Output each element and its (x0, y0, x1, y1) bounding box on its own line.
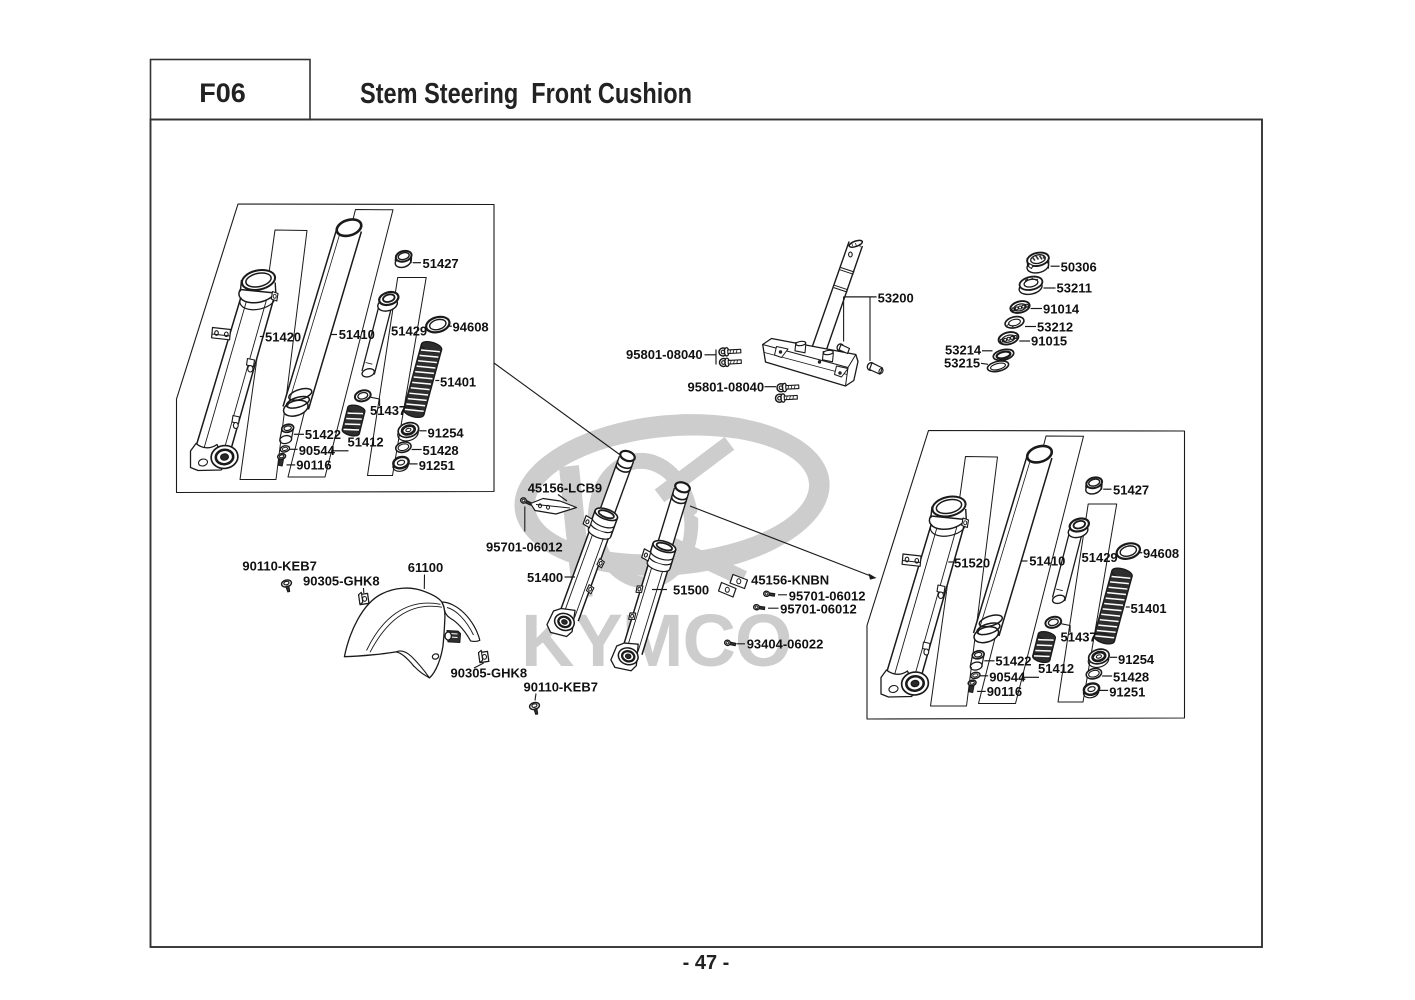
svg-text:51401: 51401 (440, 375, 476, 390)
svg-text:90116: 90116 (296, 458, 331, 473)
svg-text:95701-06012: 95701-06012 (486, 540, 563, 555)
svg-text:53215: 53215 (944, 356, 980, 371)
svg-text:51429: 51429 (391, 324, 427, 339)
svg-text:90110-KEB7: 90110-KEB7 (242, 559, 316, 574)
svg-text:51520: 51520 (954, 556, 990, 571)
svg-text:51422: 51422 (305, 427, 341, 442)
svg-text:51428: 51428 (423, 443, 459, 458)
svg-text:95801-08040: 95801-08040 (688, 380, 765, 395)
svg-text:91251: 91251 (419, 458, 455, 473)
svg-text:91254: 91254 (428, 426, 465, 441)
svg-text:Stem Steering Front Cushion: Stem Steering Front Cushion (360, 78, 692, 110)
svg-text:53212: 53212 (1037, 320, 1073, 335)
svg-text:51427: 51427 (423, 256, 459, 271)
svg-text:91015: 91015 (1031, 334, 1067, 349)
svg-text:61100: 61100 (408, 560, 443, 575)
svg-text:95801-08040: 95801-08040 (626, 347, 703, 362)
svg-text:50306: 50306 (1061, 260, 1097, 275)
svg-text:51500: 51500 (673, 583, 709, 598)
svg-text:53211: 53211 (1057, 281, 1092, 296)
svg-text:51400: 51400 (527, 570, 563, 585)
svg-text:53200: 53200 (878, 291, 914, 306)
svg-text:51437: 51437 (370, 403, 406, 418)
svg-text:94608: 94608 (453, 320, 489, 335)
svg-text:51410: 51410 (339, 327, 375, 342)
svg-text:- 47 -: - 47 - (683, 952, 730, 974)
svg-text:90305-GHK8: 90305-GHK8 (451, 666, 528, 681)
svg-text:45156-KNBN: 45156-KNBN (751, 573, 829, 588)
svg-text:95701-06012: 95701-06012 (780, 602, 857, 617)
svg-text:90110-KEB7: 90110-KEB7 (524, 680, 598, 695)
svg-text:90305-GHK8: 90305-GHK8 (303, 574, 380, 589)
svg-text:45156-LCB9: 45156-LCB9 (528, 481, 602, 496)
svg-text:51420: 51420 (265, 330, 301, 345)
svg-text:90544: 90544 (299, 443, 336, 458)
svg-text:51412: 51412 (348, 435, 384, 450)
svg-text:F06: F06 (199, 78, 246, 108)
svg-text:93404-06022: 93404-06022 (747, 637, 824, 652)
svg-text:91014: 91014 (1043, 302, 1080, 317)
